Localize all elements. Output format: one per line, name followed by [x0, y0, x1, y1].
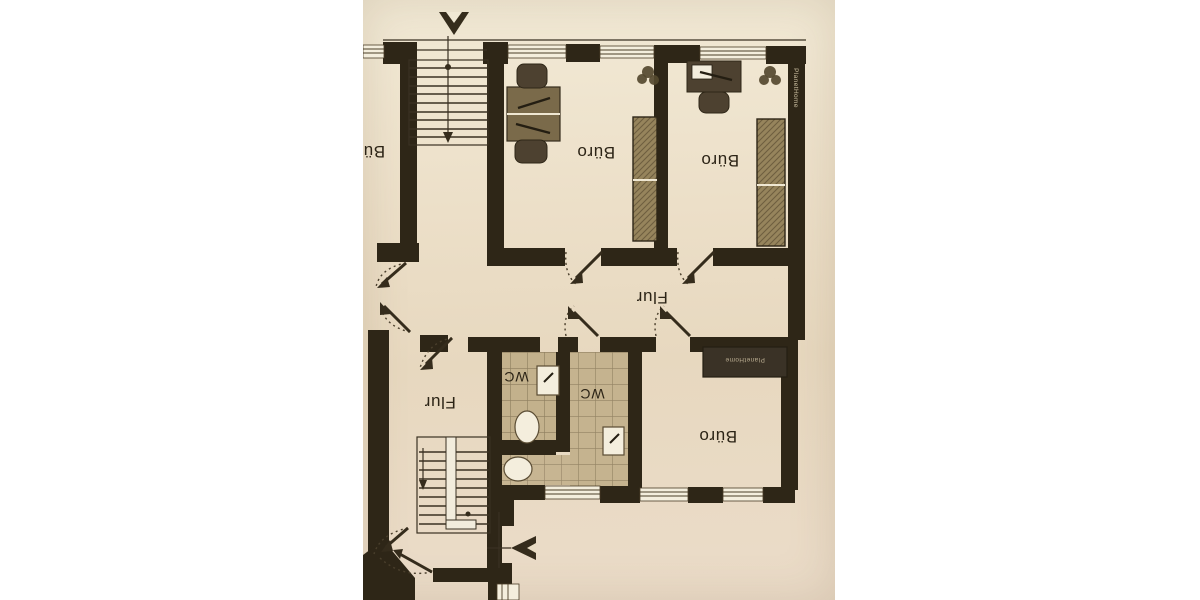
- room-label-office-top-middle: Büro: [577, 143, 615, 162]
- office-chair: [515, 140, 547, 163]
- sink-icon: [537, 366, 559, 395]
- sink-icon: [603, 427, 624, 455]
- room-label-wc-small: WC: [503, 369, 528, 385]
- door-swing-bottom-office: [655, 306, 690, 336]
- double-door-swing-left-office: [376, 263, 410, 332]
- shelf: [757, 119, 785, 246]
- windows: [363, 45, 766, 600]
- room-label-corridor-main: Flur: [636, 288, 668, 307]
- plant-icon: [759, 66, 781, 85]
- shelf: [633, 117, 657, 241]
- room-label-corridor-stair: Flur: [424, 393, 456, 412]
- door-swing-right-office: [678, 252, 714, 284]
- double-desk: [507, 87, 560, 141]
- sideboard: PlanetHome: [703, 347, 787, 377]
- staircase-bottom: [417, 437, 490, 533]
- sideboard-watermark-text: PlanetHome: [725, 356, 765, 363]
- toilet-icon: [515, 411, 539, 443]
- toilet-icon: [504, 457, 532, 481]
- door-swing-middle-office: [566, 252, 602, 284]
- single-desk: [687, 61, 741, 92]
- floorplan-drawing: PlanetHome Büro Büro Büro Flur Flur WC W…: [363, 0, 835, 600]
- room-label-wc-large: WC: [579, 386, 604, 402]
- office-chair: [699, 92, 729, 113]
- floorplan-photo: PlanetHome Büro Büro Büro Flur Flur WC W…: [363, 0, 835, 600]
- entry-arrow-top: [439, 12, 469, 35]
- staircase-top: [409, 36, 488, 145]
- wall-watermark-text: PlanetHome: [792, 68, 799, 108]
- office-chair: [517, 64, 547, 88]
- room-label-office-bottom-right: Büro: [699, 427, 737, 446]
- room-label-office-top-right: Büro: [701, 151, 739, 170]
- room-label-office-top-left: Büro: [363, 142, 385, 161]
- door-swing-wc-large: [565, 306, 598, 336]
